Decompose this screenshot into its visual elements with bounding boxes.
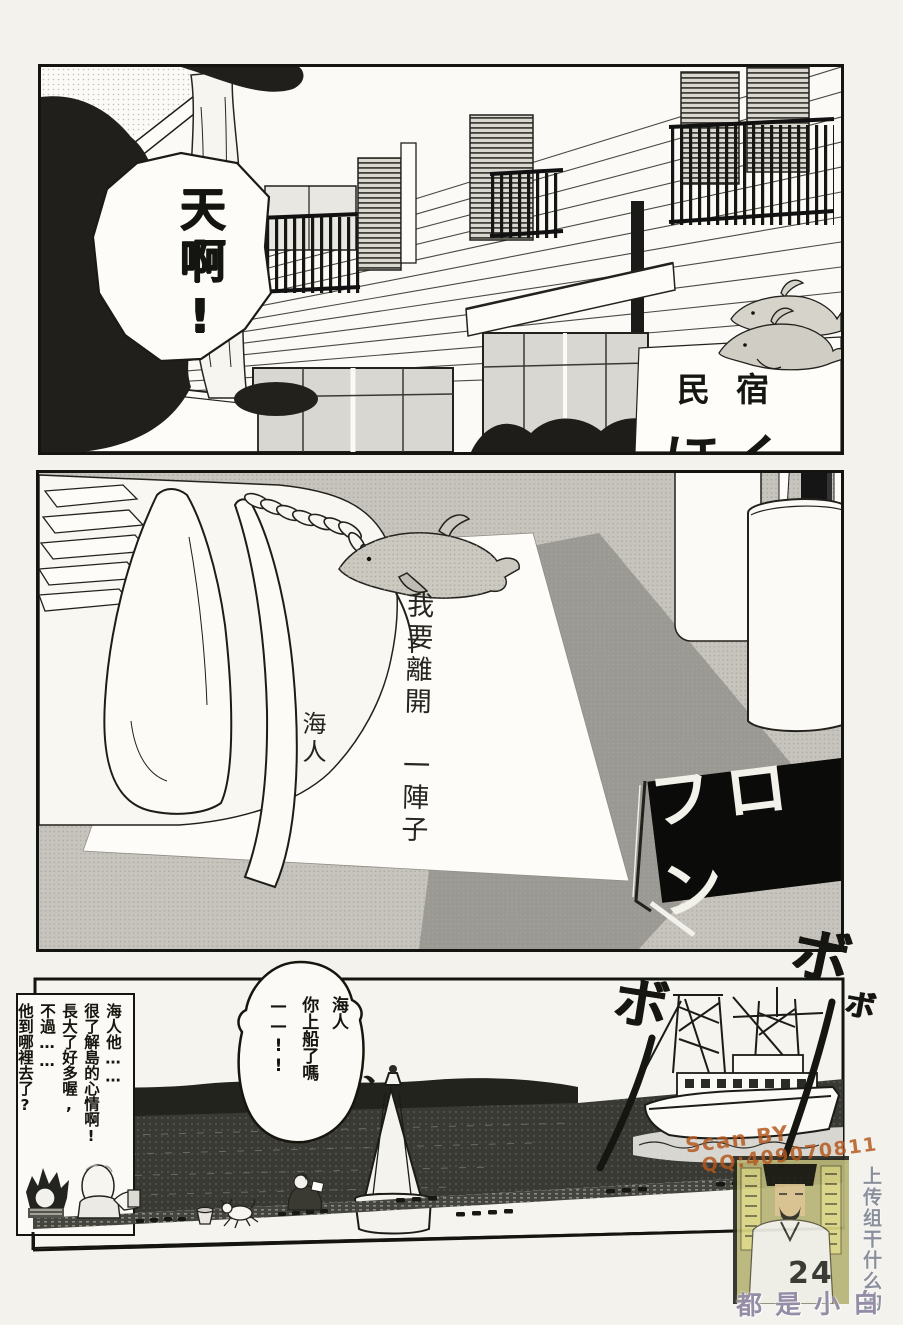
front-desk-sign: フロン — [647, 755, 844, 903]
minshuku-sign-name: ほくま — [663, 415, 841, 455]
panel-front-desk: フロン 我要離開 一陣子 海人 — [36, 470, 844, 952]
minshuku-sign-title: 民宿 — [677, 363, 795, 411]
sfx-engine-bo-3: ボ — [843, 990, 878, 1025]
exclaim-bubble-text: 天啊! — [153, 167, 223, 367]
note-text: 我要離開 一陣子 — [391, 591, 437, 872]
note-signature: 海人 — [295, 711, 330, 767]
front-desk-sign-text: フロン — [644, 726, 844, 931]
harbor-art — [33, 977, 845, 1250]
page-number: 24 — [788, 1256, 834, 1291]
manga-page: 天啊! 民宿 ほくま — [0, 0, 903, 1325]
pen-cup — [748, 473, 841, 731]
panel-building-exterior: 天啊! 民宿 ほくま — [38, 64, 844, 455]
shout-bubble-text: 海人 你上船了嗎 ——!! — [252, 996, 352, 1128]
sfx-engine-bo-2: ボ — [787, 923, 856, 992]
sfx-engine-bo-1: ボ — [610, 974, 672, 1036]
narration-box: 海人他…… 很了解島的心情啊! 長大了好多喔, 不過…… 他到哪裡去了? — [16, 993, 135, 1236]
panel-harbor — [33, 977, 845, 1250]
narration-box-text: 海人他…… 很了解島的心情啊! 長大了好多喔, 不過…… 他到哪裡去了? — [24, 1003, 124, 1223]
